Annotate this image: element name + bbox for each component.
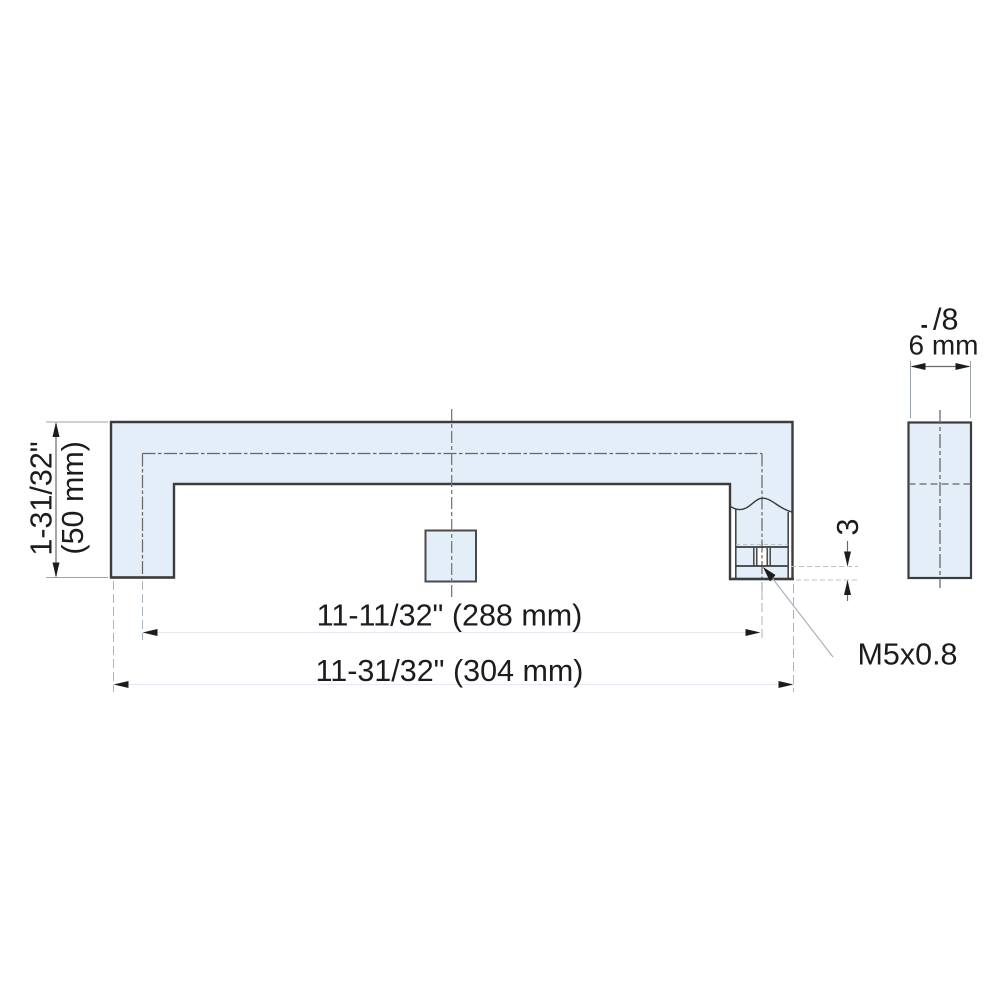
svg-text:11-11/32" (288 mm): 11-11/32" (288 mm) bbox=[317, 599, 583, 633]
svg-text:6 mm: 6 mm bbox=[909, 329, 979, 360]
svg-text:1-31/32": 1-31/32" bbox=[25, 441, 59, 555]
svg-text:11-31/32" (304 mm): 11-31/32" (304 mm) bbox=[316, 654, 584, 688]
svg-text:3: 3 bbox=[831, 519, 865, 536]
svg-text:(50 mm): (50 mm) bbox=[56, 441, 90, 555]
svg-text:M5x0.8: M5x0.8 bbox=[858, 637, 958, 671]
